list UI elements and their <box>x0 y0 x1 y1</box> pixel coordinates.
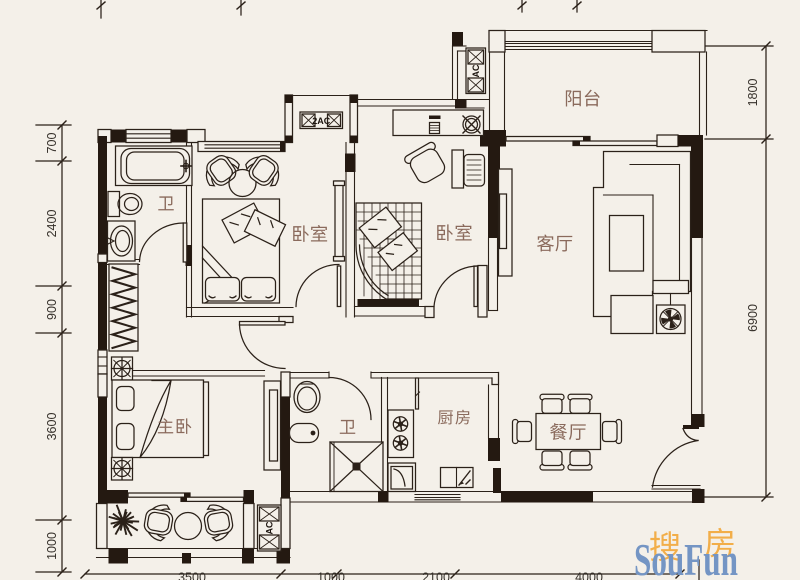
svg-text:2400: 2400 <box>45 210 59 238</box>
svg-text:AC: AC <box>471 64 481 77</box>
svg-text:AC: AC <box>265 521 275 534</box>
svg-text:6900: 6900 <box>746 304 760 332</box>
svg-text:900: 900 <box>45 299 59 320</box>
svg-text:3600: 3600 <box>45 413 59 441</box>
svg-text:1800: 1800 <box>746 79 760 107</box>
svg-text:2100: 2100 <box>422 571 450 580</box>
svg-text:SouFun: SouFun <box>634 535 738 580</box>
svg-text:1000: 1000 <box>317 571 345 580</box>
svg-text:1000: 1000 <box>45 532 59 560</box>
svg-text:700: 700 <box>45 133 59 154</box>
svg-text:4000: 4000 <box>575 571 603 580</box>
svg-text:3500: 3500 <box>178 571 206 580</box>
svg-text:2AC: 2AC <box>312 116 331 126</box>
